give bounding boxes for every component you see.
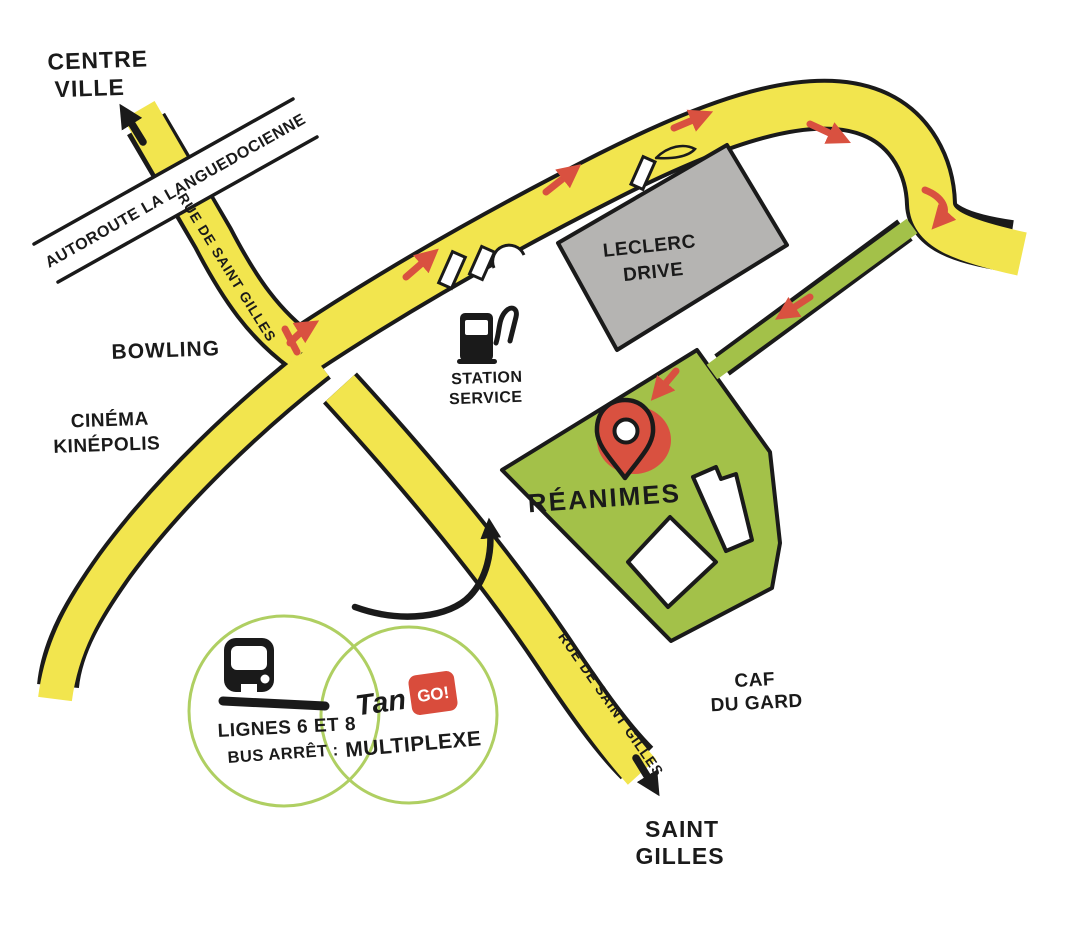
cinema-label-line2: KINÉPOLIS [53, 432, 161, 458]
pump-hose [496, 308, 516, 343]
station-label-line1: STATION [451, 369, 523, 388]
entrance-arch [493, 245, 524, 268]
centre-ville-label-line1: CENTRE [47, 45, 148, 74]
bus-info-bubble: Tan GO! LIGNES 6 ET 8 BUS ARRÊT : MULTIP… [189, 616, 497, 806]
pump-base [457, 359, 497, 364]
caf-label-line1: CAF [734, 669, 776, 692]
bus-underline [223, 701, 325, 706]
bus-light [261, 675, 270, 684]
rue-st-gilles-upper-label: RUE DE SAINT GILLES [175, 190, 280, 345]
bus-front-icon [224, 638, 274, 694]
pin-hole [615, 420, 638, 443]
cinema-label-line1: CINÉMA [70, 408, 149, 433]
fuel-pump-icon [457, 308, 516, 364]
caf-label-line2: DU GARD [710, 691, 803, 717]
access-map: LECLERC DRIVE STATION SERVICE RÉANIMES [0, 0, 1070, 944]
bus-wheel-gap [241, 684, 257, 694]
saint-gilles-label-line1: SAINT [645, 816, 719, 842]
station-label-line2: SERVICE [449, 389, 523, 409]
map-canvas: LECLERC DRIVE STATION SERVICE RÉANIMES [0, 0, 1070, 944]
centre-ville-label-line2: VILLE [54, 74, 125, 102]
bowling-label: BOWLING [111, 337, 220, 364]
saint-gilles-label-line2: GILLES [635, 843, 724, 869]
pump-screen [465, 320, 488, 335]
bus-windshield [231, 646, 267, 670]
